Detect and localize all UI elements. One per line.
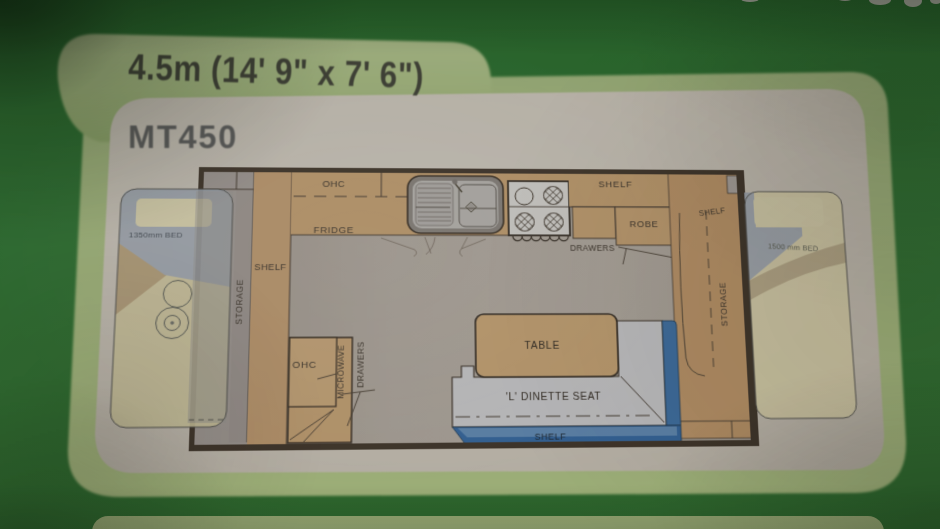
svg-text:OHC: OHC [292, 359, 317, 370]
svg-text:MICROWAVE: MICROWAVE [336, 345, 346, 399]
svg-text:SHELF: SHELF [598, 179, 632, 189]
svg-text:ROBE: ROBE [629, 219, 658, 229]
svg-text:DRAWERS: DRAWERS [570, 244, 615, 253]
svg-text:FRIDGE: FRIDGE [313, 225, 354, 235]
svg-text:OHC: OHC [322, 179, 345, 189]
svg-text:STORAGE: STORAGE [234, 279, 245, 324]
svg-text:SHELF: SHELF [534, 431, 566, 442]
svg-text:'L' DINETTE SEAT: 'L' DINETTE SEAT [506, 391, 602, 403]
svg-text:DRAWERS: DRAWERS [355, 341, 366, 387]
svg-text:1350mm BED: 1350mm BED [128, 230, 183, 239]
svg-text:SHELF: SHELF [254, 262, 286, 272]
svg-text:TABLE: TABLE [524, 341, 560, 352]
